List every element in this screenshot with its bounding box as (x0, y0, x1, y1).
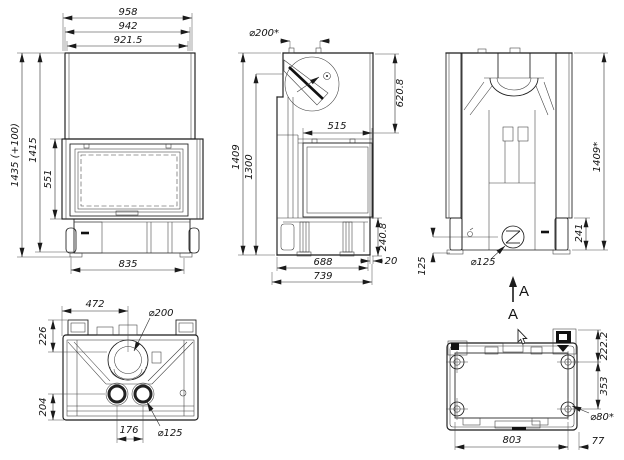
bottom-view-dimensions: 222.2 353 ⌀80* 803 77 (455, 330, 614, 450)
dim-front-width-inner: 921.5 (114, 35, 143, 46)
door-handle (116, 211, 138, 215)
dim-side-flue-diameter: ⌀200* (249, 28, 279, 39)
hood-panel (65, 53, 195, 139)
technical-drawing-page: 958 942 921.5 1435 (+100) 1415 551 835 (0, 0, 624, 460)
dim-front-height: 1415 (28, 137, 39, 162)
side-view-geometry (277, 48, 373, 256)
damper-flap (289, 67, 323, 99)
firebox-profile (303, 143, 372, 217)
dim-side-rear-gap: 20 (385, 256, 398, 267)
front-view: 958 942 921.5 1435 (+100) 1415 551 835 (10, 7, 203, 274)
dim-rear-intake-diameter: ⌀125 (470, 257, 495, 268)
left-foot (66, 228, 76, 253)
dim-top-outlet-diameter: ⌀125 (157, 428, 182, 439)
rear-view-geometry (446, 48, 572, 254)
left-side-panel (446, 53, 461, 218)
bottom-view: A (446, 306, 614, 450)
dim-rear-intake-height: 241 (574, 223, 585, 242)
drawing-canvas: 958 942 921.5 1435 (+100) 1415 551 835 (0, 0, 624, 460)
dim-bottom-hole-spacing: 353 (599, 376, 610, 395)
top-view: 472 ⌀200 226 204 176 ⌀125 (38, 299, 198, 443)
dim-top-flue-diameter: ⌀200 (148, 308, 173, 319)
dim-front-width-mid: 942 (118, 21, 137, 32)
dim-front-overall-height: 1435 (+100) (10, 123, 21, 187)
latch-mechanism (553, 329, 576, 354)
dim-front-overall-width: 958 (118, 7, 137, 18)
mounting-holes (446, 351, 579, 420)
bottom-view-geometry (446, 329, 579, 430)
dim-rear-foot-height: 125 (417, 256, 428, 275)
glass-panel (78, 152, 180, 209)
dim-side-glass-depth: 515 (327, 121, 346, 132)
front-view-geometry (62, 53, 203, 257)
dim-rear-height: 1409* (592, 142, 603, 172)
right-side-panel (556, 53, 572, 218)
dim-top-depth-front: 226 (38, 326, 49, 345)
dim-bottom-side-offset: 77 (592, 436, 605, 447)
section-arrow-a: A (509, 276, 529, 302)
dim-top-depth-rear: 204 (38, 397, 49, 416)
dim-side-dome-height: 620.8 (395, 79, 406, 108)
front-view-dimensions: 958 942 921.5 1435 (+100) 1415 551 835 (10, 7, 192, 274)
dim-side-height-secondary: 1300 (244, 154, 255, 179)
dim-front-base-width: 835 (118, 259, 137, 270)
bottom-view-label: A (508, 306, 518, 323)
dim-top-flue-offset: 472 (85, 299, 104, 310)
firebox-body (62, 139, 203, 219)
right-foot (189, 228, 199, 253)
damper-swing-arc (285, 57, 339, 111)
mouse-cursor-icon (518, 330, 527, 345)
side-view-dimensions: ⌀200* 620.8 515 1409 1300 240.8 20 (231, 28, 406, 285)
section-arrow-label: A (519, 283, 529, 300)
side-view: ⌀200* 620.8 515 1409 1300 240.8 20 (231, 28, 406, 285)
top-view-dimensions: 472 ⌀200 226 204 176 ⌀125 (38, 299, 183, 443)
rear-view: 1409* 241 125 ⌀125 A (417, 48, 608, 302)
dim-side-base-depth: 688 (313, 257, 332, 268)
dim-front-glass-height: 551 (43, 169, 54, 188)
dim-top-outlet-spacing: 176 (119, 425, 138, 436)
dim-side-overall-depth: 739 (313, 271, 332, 282)
top-view-geometry (63, 320, 198, 420)
dim-side-base-height: 240.8 (378, 223, 389, 252)
dim-bottom-offset-top: 222.2 (599, 332, 610, 361)
dim-side-height: 1409 (231, 144, 242, 169)
dim-bottom-hole-diameter: ⌀80* (590, 412, 614, 423)
dim-bottom-width: 803 (502, 435, 521, 446)
